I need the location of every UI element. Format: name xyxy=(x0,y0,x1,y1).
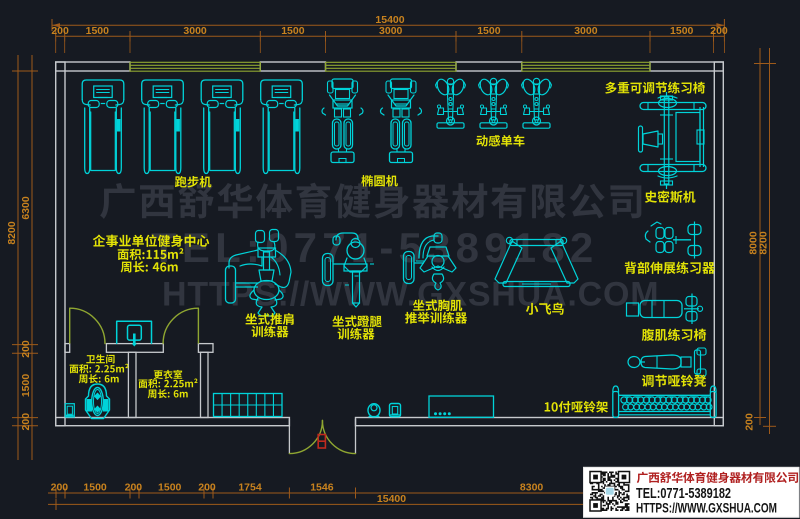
svg-text:1500: 1500 xyxy=(158,482,182,494)
svg-text:HTTPS://WWW.GXSHUA.COM: HTTPS://WWW.GXSHUA.COM xyxy=(162,276,659,314)
svg-text:3000: 3000 xyxy=(574,25,598,37)
svg-text:15400: 15400 xyxy=(377,493,406,505)
svg-text:1500: 1500 xyxy=(670,25,694,37)
svg-text:1500: 1500 xyxy=(477,25,501,37)
svg-text:200: 200 xyxy=(51,25,69,37)
svg-text:200: 200 xyxy=(20,340,32,358)
svg-text:1500: 1500 xyxy=(281,25,305,37)
svg-text:HTTPS://WWW.GXSHUA.COM: HTTPS://WWW.GXSHUA.COM xyxy=(636,500,777,516)
svg-text:200: 200 xyxy=(198,482,216,494)
svg-text:1546: 1546 xyxy=(310,482,334,494)
svg-text:200: 200 xyxy=(20,413,32,431)
svg-text:200: 200 xyxy=(51,482,69,494)
svg-text:3000: 3000 xyxy=(183,25,207,37)
svg-text:TEL:0771-5389182: TEL:0771-5389182 xyxy=(151,224,598,271)
svg-text:6300: 6300 xyxy=(20,196,32,220)
svg-text:200: 200 xyxy=(710,25,728,37)
svg-text:200: 200 xyxy=(125,482,143,494)
svg-text:8200: 8200 xyxy=(6,221,18,245)
svg-text:1500: 1500 xyxy=(20,374,32,398)
svg-text:3000: 3000 xyxy=(379,25,403,37)
svg-text:8200: 8200 xyxy=(758,231,770,255)
svg-text:1500: 1500 xyxy=(83,482,107,494)
svg-text:1500: 1500 xyxy=(86,25,110,37)
svg-text:1754: 1754 xyxy=(238,482,262,494)
svg-text:8300: 8300 xyxy=(520,482,544,494)
svg-text:200: 200 xyxy=(744,413,756,431)
